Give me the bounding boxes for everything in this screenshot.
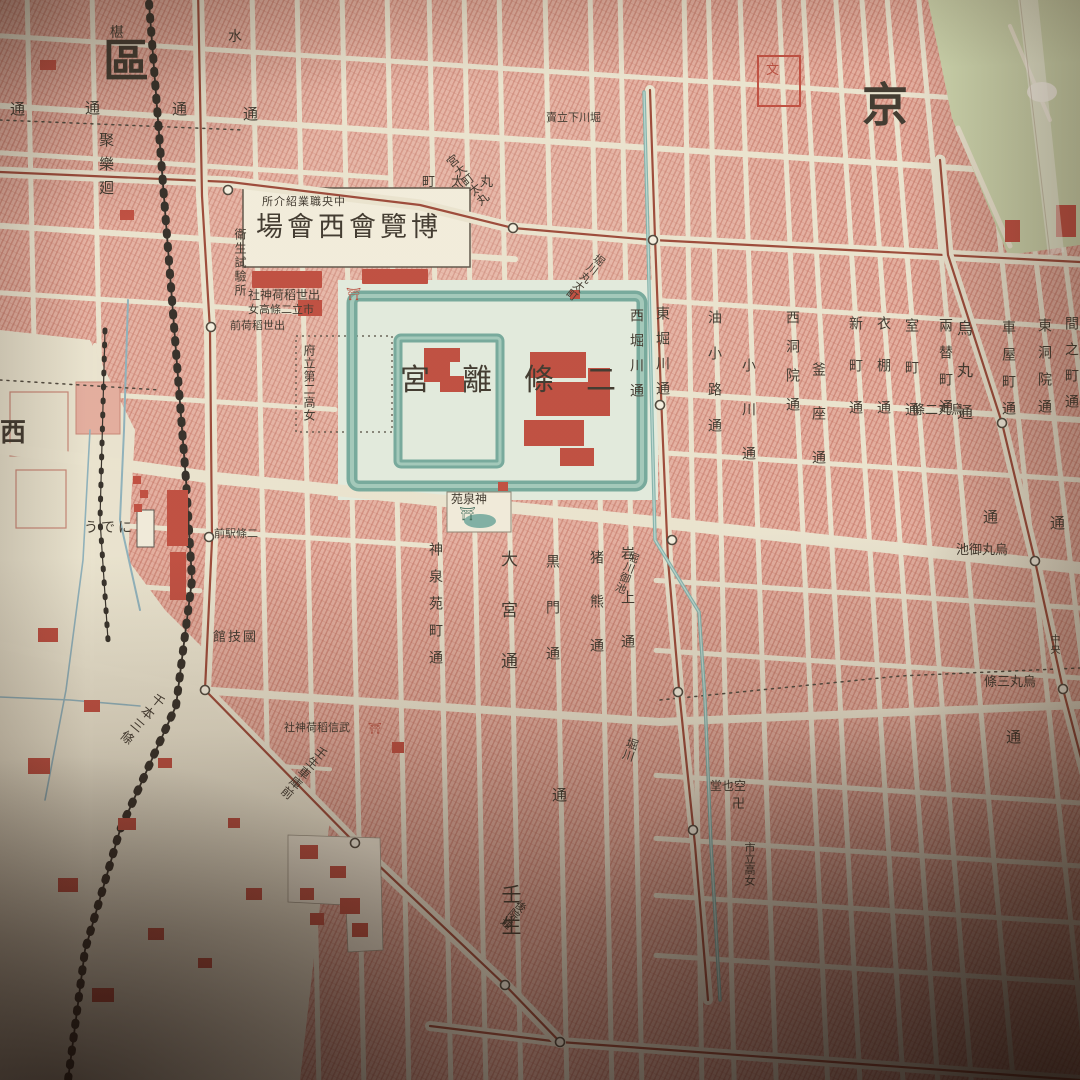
map-label: 西洞院通 bbox=[785, 310, 799, 426]
map-label: 苑泉神 bbox=[451, 493, 487, 505]
map-label: 社神荷稻世出 bbox=[248, 289, 320, 301]
city-map: 區京西宮離條二場會西會覽博所介紹業職央中衛生試驗所社神荷稻世出⛩女高條二立市前荷… bbox=[0, 0, 1080, 1080]
map-photo: 區京西宮離條二場會西會覽博所介紹業職央中衛生試驗所社神荷稻世出⛩女高條二立市前荷… bbox=[0, 0, 1080, 1080]
map-label: 條二丸烏 bbox=[912, 404, 964, 417]
torii-gate-icon: ⛩ bbox=[368, 723, 382, 734]
map-label: 水 bbox=[228, 30, 242, 44]
map-label: 通 bbox=[10, 102, 25, 117]
map-label: 場會西會覽博 bbox=[256, 214, 442, 241]
map-label: 猪熊通 bbox=[589, 550, 603, 682]
map-label: 宮離條二 bbox=[400, 366, 648, 396]
map-label: 聚樂廻 bbox=[98, 132, 113, 204]
map-label: 油小路通 bbox=[707, 310, 721, 454]
map-label: 堀川丸太町 bbox=[564, 252, 607, 302]
map-label: 小川通 bbox=[741, 358, 755, 490]
map-labels-layer: 區京西宮離條二場會西會覽博所介紹業職央中衛生試驗所社神荷稻世出⛩女高條二立市前荷… bbox=[0, 0, 1080, 1080]
map-label: 通 bbox=[983, 510, 998, 525]
map-label: 區 bbox=[103, 38, 149, 84]
map-label: 通 bbox=[172, 102, 187, 117]
map-label: 黒門通 bbox=[545, 554, 559, 692]
map-label: 釜座通 bbox=[811, 362, 825, 494]
map-label: 通 bbox=[243, 107, 258, 122]
map-label: 車屋町通 bbox=[1001, 320, 1015, 428]
map-label: 衣棚通 bbox=[876, 316, 890, 442]
map-label: 間之町通 bbox=[1064, 316, 1078, 420]
map-label: 社神荷稻信武 bbox=[284, 722, 350, 733]
map-label: うでに bbox=[84, 521, 135, 535]
temple-manji-icon: 卍 bbox=[732, 798, 745, 811]
map-label: 所介紹業職央中 bbox=[262, 196, 346, 207]
map-label: 中央 bbox=[1048, 634, 1058, 654]
map-label: 室町通 bbox=[904, 318, 918, 444]
map-label: 東洞院通 bbox=[1037, 318, 1051, 426]
torii-gate-icon: ⛩ bbox=[459, 508, 476, 521]
map-label: 前荷稻世出 bbox=[230, 320, 285, 331]
map-label: 烏丸通 bbox=[955, 320, 971, 446]
map-label: 京 bbox=[862, 82, 908, 128]
map-label: 通 bbox=[1006, 730, 1021, 745]
map-label: 文 bbox=[766, 64, 779, 77]
map-label: 前駅條二 bbox=[214, 528, 258, 539]
map-label: 神泉苑町通 bbox=[428, 542, 442, 677]
map-label: 條三丸烏 bbox=[984, 676, 1036, 689]
map-label: 新町通 bbox=[848, 316, 862, 442]
map-label: 賣立下川堀 bbox=[546, 112, 601, 123]
map-label: 堀川御池 bbox=[614, 550, 641, 595]
map-label: 女高條二立市 bbox=[248, 304, 314, 315]
map-label: 通 bbox=[85, 101, 100, 116]
map-label: 壬生車庫前 bbox=[278, 744, 329, 802]
map-label: 通 bbox=[1050, 516, 1065, 531]
map-label: 西堀川通 bbox=[629, 308, 643, 408]
map-label: 堂也空 bbox=[710, 780, 746, 792]
map-label: 堀川 bbox=[621, 736, 640, 763]
map-label: 衛生試驗所 bbox=[234, 228, 246, 298]
map-label: 市立高女 bbox=[744, 842, 755, 886]
map-label: 府立第二高女 bbox=[303, 344, 315, 422]
map-label: 館技國 bbox=[213, 631, 258, 644]
map-label: 椹 bbox=[110, 26, 124, 40]
torii-gate-icon: ⛩ bbox=[346, 288, 361, 300]
map-label: 東堀川通 bbox=[655, 306, 669, 406]
map-label: 通 bbox=[552, 788, 567, 803]
map-label: 千本三條 bbox=[115, 690, 166, 747]
map-label: 池御丸烏 bbox=[956, 544, 1008, 557]
map-label: 西 bbox=[0, 420, 26, 446]
map-label: 大宮通 bbox=[498, 550, 515, 703]
